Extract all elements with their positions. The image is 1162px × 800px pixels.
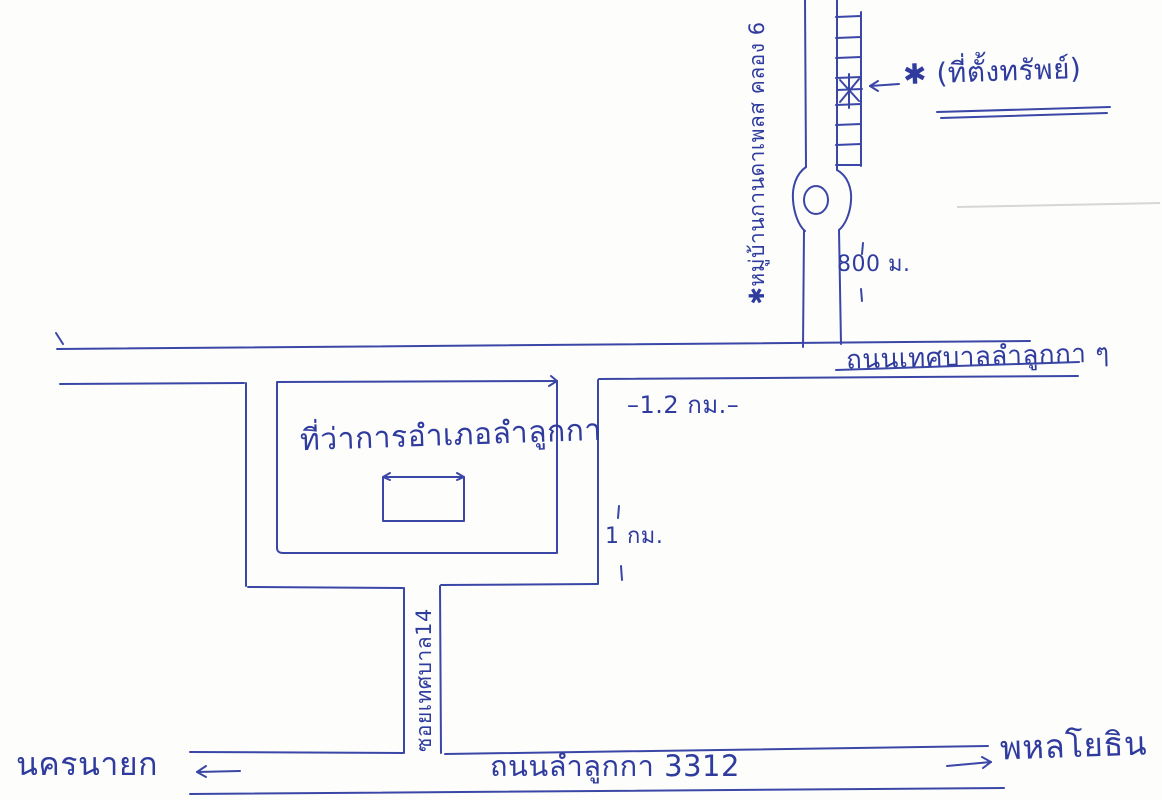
faint-scan-line <box>957 203 1160 207</box>
distance-1-2km-label: –1.2 กม.– <box>627 393 739 418</box>
arrow-to-property-icon <box>870 81 899 91</box>
destination-west-label: นครนายก <box>16 748 158 782</box>
soi-label: ซอยเทศบาล14 <box>413 595 435 765</box>
vertical-road <box>803 0 841 347</box>
office-block-lane <box>246 380 598 588</box>
roundabout <box>793 167 851 231</box>
property-location-label: ✱ (ที่ตั้งทรัพย์) <box>903 54 1082 90</box>
bottom-road-label: ถนนลำลูกกา 3312 <box>490 751 740 781</box>
arrow-east-icon <box>947 757 991 768</box>
district-office-building <box>383 473 464 521</box>
property-star-icon <box>837 74 862 108</box>
distance-1km-label: 1 กม. <box>605 525 663 548</box>
property-label-underline <box>937 107 1110 118</box>
arrow-west-icon <box>197 766 240 777</box>
distance-800m-label: 800 ม. <box>837 253 910 276</box>
map-linework <box>0 0 1162 800</box>
village-road-label: ✱หมู่บ้านกานดาเพลส คลอง 6 <box>746 13 768 313</box>
destination-east-label: พหลโยธิน <box>999 726 1147 766</box>
district-office-compound <box>277 376 557 553</box>
map-sketch: ✱ (ที่ตั้งทรัพย์) ✱หมู่บ้านกานดาเพลส คลอ… <box>0 0 1162 800</box>
